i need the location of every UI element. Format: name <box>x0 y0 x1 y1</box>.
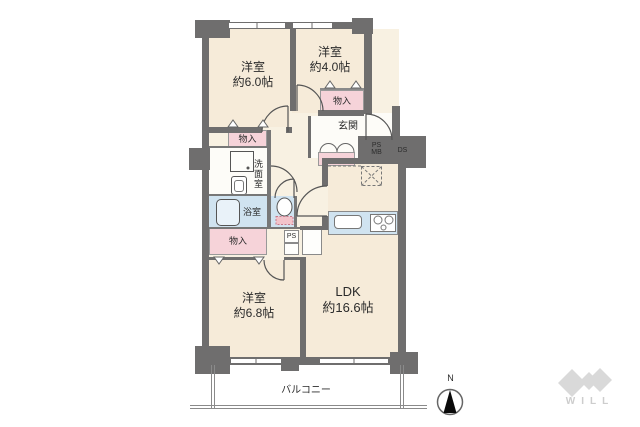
room-west6-size: 約6.0帖 <box>215 75 291 90</box>
bathroom-label: 浴室 <box>237 207 267 218</box>
storage-door-mark <box>214 257 224 264</box>
toilet-bowl <box>277 198 292 216</box>
balcony-label: バルコニー <box>266 385 346 397</box>
door-arc-west68 <box>264 260 284 280</box>
toilet-tank <box>276 217 293 225</box>
ds-label: DS <box>393 147 412 154</box>
storage-right-label: 物入 <box>320 96 364 107</box>
room-west4-label: 洋室 約4.0帖 <box>294 45 366 74</box>
ps-mb-label: PS MB <box>366 142 387 157</box>
entrance-label: 玄関 <box>330 121 366 133</box>
storage-door-mark <box>254 257 264 264</box>
will-logo-text: WILL <box>558 396 622 407</box>
stove-burner <box>385 216 393 224</box>
storage-door-mark <box>351 81 361 88</box>
room-west68-name: 洋室 <box>216 291 292 306</box>
room-ldk-size: 約16.6帖 <box>308 300 388 316</box>
washing-machine-drain <box>247 167 250 170</box>
room-west68-size: 約6.8帖 <box>216 306 292 321</box>
room-west6-name: 洋室 <box>215 60 291 75</box>
room-west6-label: 洋室 約6.0帖 <box>215 60 291 89</box>
fridge-space <box>362 167 382 186</box>
fridge-space-cross <box>362 167 382 186</box>
storage-door-mark <box>325 81 335 88</box>
floor-plan: 洋室 約6.0帖 洋室 約4.0帖 洋室 約6.8帖 LDK 約16.6帖 物入… <box>0 0 640 427</box>
shoe-cabinet-door-arc <box>320 144 337 153</box>
door-arc-ldk <box>297 186 327 216</box>
will-logo-icon <box>558 368 612 397</box>
room-ldk-label: LDK 約16.6帖 <box>308 284 388 316</box>
room-west4-size: 約4.0帖 <box>294 60 366 75</box>
compass-icon <box>438 390 463 415</box>
washroom-label: 洗面室 <box>252 153 263 195</box>
stove-burner <box>374 216 382 224</box>
ps-small-label: PS <box>284 233 299 240</box>
room-west4-name: 洋室 <box>294 45 366 60</box>
room-west68-label: 洋室 約6.8帖 <box>216 291 292 320</box>
compass-north-label: N <box>444 373 457 384</box>
stove-burner <box>381 225 386 230</box>
storage-topleft-label: 物入 <box>228 134 267 145</box>
storage-door-mark <box>258 120 268 127</box>
door-arc-toilet <box>275 179 294 198</box>
door-arc-west6 <box>262 106 288 132</box>
ps-label: PS <box>366 142 387 149</box>
storage-door-mark <box>228 120 238 127</box>
storage-bottomleft-label: 物入 <box>212 236 264 247</box>
door-arc-entrance <box>366 114 392 140</box>
mb-label: MB <box>366 149 387 156</box>
room-ldk-name: LDK <box>308 284 388 300</box>
shoe-cabinet-door-arc <box>337 144 354 153</box>
